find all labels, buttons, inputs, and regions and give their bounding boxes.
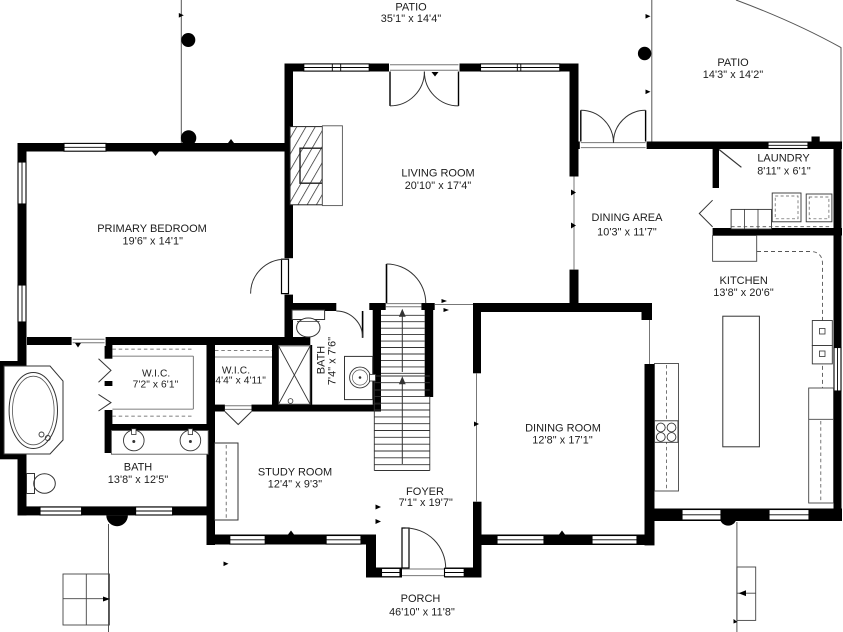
svg-text:PATIO: PATIO — [717, 57, 749, 69]
svg-text:8'11" x 6'1": 8'11" x 6'1" — [757, 166, 811, 178]
svg-text:14'3" x 14'2": 14'3" x 14'2" — [703, 69, 764, 81]
svg-text:46'10" x 11'8": 46'10" x 11'8" — [389, 607, 455, 619]
svg-text:7'2" x 6'1": 7'2" x 6'1" — [133, 380, 179, 391]
svg-text:12'4" x 9'3": 12'4" x 9'3" — [268, 479, 322, 491]
svg-text:KITCHEN: KITCHEN — [720, 275, 768, 287]
svg-text:4'4" x 4'11": 4'4" x 4'11" — [215, 376, 266, 387]
svg-text:LIVING ROOM: LIVING ROOM — [401, 168, 474, 180]
svg-text:7'4" x 7'6": 7'4" x 7'6" — [327, 337, 339, 385]
svg-text:13'8" x 20'6": 13'8" x 20'6" — [713, 287, 774, 299]
svg-text:PATIO: PATIO — [395, 2, 427, 14]
svg-text:BATH: BATH — [124, 462, 153, 474]
svg-text:STUDY ROOM: STUDY ROOM — [258, 467, 332, 479]
svg-text:DINING AREA: DINING AREA — [592, 212, 664, 224]
svg-text:20'10" x 17'4": 20'10" x 17'4" — [405, 180, 472, 192]
svg-text:7'1" x 19'7": 7'1" x 19'7" — [399, 497, 453, 509]
svg-text:DINING ROOM: DINING ROOM — [525, 423, 601, 435]
svg-text:13'8" x 12'5": 13'8" x 12'5" — [108, 474, 169, 486]
svg-text:12'8" x 17'1": 12'8" x 17'1" — [532, 435, 593, 447]
svg-text:19'6" x 14'1": 19'6" x 14'1" — [123, 236, 184, 248]
svg-text:PRIMARY BEDROOM: PRIMARY BEDROOM — [97, 223, 207, 235]
svg-text:LAUNDRY: LAUNDRY — [757, 153, 810, 165]
svg-text:35'1" x 14'4": 35'1" x 14'4" — [381, 13, 442, 25]
svg-text:10'3" x 11'7": 10'3" x 11'7" — [597, 227, 657, 239]
svg-text:PORCH: PORCH — [401, 593, 441, 605]
svg-text:W.I.C.: W.I.C. — [142, 369, 170, 380]
